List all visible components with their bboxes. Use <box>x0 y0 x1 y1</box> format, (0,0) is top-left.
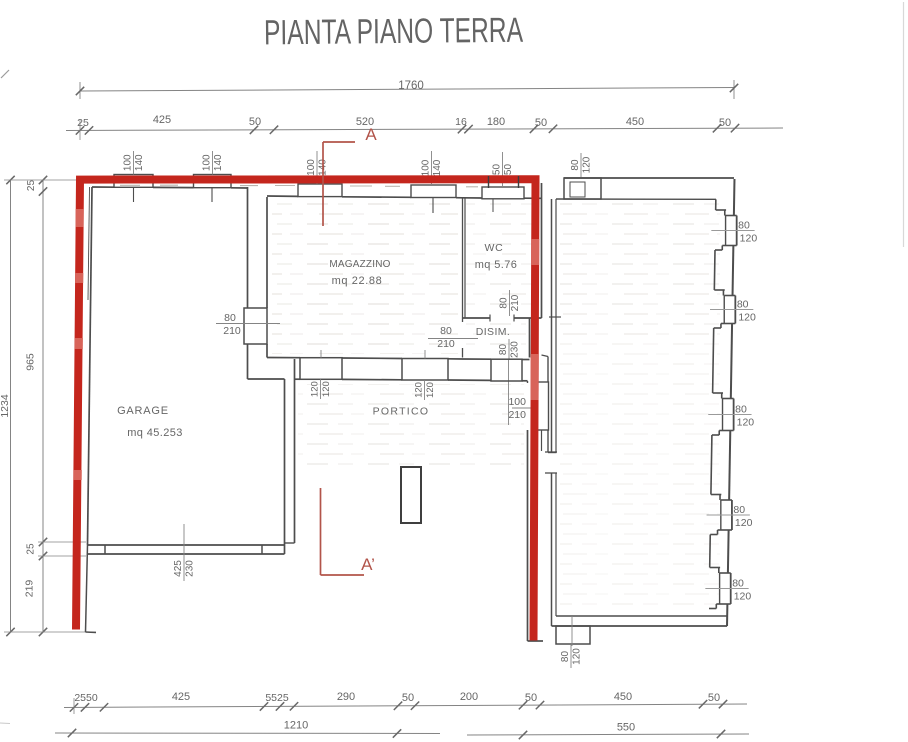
svg-text:450: 450 <box>626 116 644 128</box>
svg-text:120: 120 <box>581 156 592 173</box>
svg-text:MAGAZZINO: MAGAZZINO <box>329 259 390 270</box>
svg-text:120: 120 <box>309 381 320 397</box>
svg-text:WC: WC <box>484 242 503 254</box>
svg-text:80: 80 <box>498 344 509 356</box>
svg-text:50: 50 <box>402 692 414 704</box>
svg-text:120: 120 <box>571 648 582 665</box>
svg-text:50: 50 <box>525 692 537 704</box>
svg-text:A’: A’ <box>361 555 375 574</box>
svg-text:120: 120 <box>425 382 436 398</box>
svg-text:120: 120 <box>413 382 424 398</box>
svg-text:DISIM.: DISIM. <box>476 326 511 338</box>
svg-text:140: 140 <box>213 154 224 171</box>
svg-text:50: 50 <box>492 164 503 176</box>
svg-text:80: 80 <box>570 159 581 171</box>
svg-text:120: 120 <box>740 233 758 245</box>
svg-text:1760: 1760 <box>398 80 424 92</box>
svg-text:425: 425 <box>172 691 190 703</box>
svg-text:25: 25 <box>26 180 37 192</box>
svg-text:100: 100 <box>421 159 432 176</box>
svg-text:120: 120 <box>321 381 332 397</box>
svg-text:PIANTA PIANO TERRA: PIANTA PIANO TERRA <box>264 11 524 53</box>
svg-text:120: 120 <box>735 517 753 529</box>
svg-text:120: 120 <box>737 417 755 429</box>
svg-text:1234: 1234 <box>0 394 11 418</box>
svg-text:1210: 1210 <box>284 720 308 732</box>
svg-text:50: 50 <box>503 164 514 176</box>
svg-text:GARAGE: GARAGE <box>117 405 169 417</box>
svg-text:100: 100 <box>306 159 317 176</box>
svg-text:230: 230 <box>184 560 195 577</box>
svg-text:180: 180 <box>487 116 505 128</box>
svg-text:140: 140 <box>134 154 145 171</box>
svg-text:PORTICO: PORTICO <box>373 406 430 418</box>
svg-text:210: 210 <box>437 338 455 350</box>
svg-text:100: 100 <box>202 154 213 171</box>
svg-text:5525: 5525 <box>265 692 289 704</box>
svg-text:550: 550 <box>617 722 635 734</box>
svg-text:50: 50 <box>535 117 547 129</box>
svg-text:80: 80 <box>733 504 745 516</box>
svg-text:210: 210 <box>223 325 241 337</box>
svg-text:80: 80 <box>560 651 571 663</box>
svg-text:425: 425 <box>153 114 171 126</box>
svg-text:80: 80 <box>738 220 750 232</box>
svg-text:80: 80 <box>732 578 744 590</box>
svg-text:25: 25 <box>77 117 89 129</box>
svg-text:100: 100 <box>123 154 134 171</box>
svg-text:965: 965 <box>24 353 36 371</box>
svg-text:120: 120 <box>738 312 756 324</box>
svg-text:100: 100 <box>508 396 526 408</box>
svg-text:80: 80 <box>499 297 510 309</box>
svg-text:290: 290 <box>337 691 355 703</box>
svg-text:25: 25 <box>26 543 37 555</box>
svg-text:80: 80 <box>224 312 236 324</box>
svg-text:80: 80 <box>737 299 749 311</box>
svg-text:450: 450 <box>614 691 632 703</box>
svg-text:50: 50 <box>708 692 720 704</box>
svg-text:200: 200 <box>460 691 478 703</box>
svg-text:mq 22.88: mq 22.88 <box>332 275 383 287</box>
svg-text:120: 120 <box>734 591 752 603</box>
svg-text:mq 5.76: mq 5.76 <box>475 259 518 271</box>
svg-text:80: 80 <box>440 325 452 337</box>
svg-text:210: 210 <box>508 409 526 421</box>
svg-text:80: 80 <box>735 404 747 416</box>
svg-text:219: 219 <box>23 580 35 598</box>
svg-text:140: 140 <box>432 159 443 176</box>
svg-text:425: 425 <box>173 560 184 577</box>
svg-text:210: 210 <box>510 294 521 311</box>
svg-text:2550: 2550 <box>74 692 98 704</box>
svg-text:A: A <box>365 125 377 144</box>
svg-text:50: 50 <box>249 116 261 128</box>
svg-text:230: 230 <box>509 341 520 358</box>
svg-text:50: 50 <box>719 117 731 129</box>
svg-text:16: 16 <box>455 116 467 128</box>
svg-text:mq 45.253: mq 45.253 <box>127 427 183 439</box>
